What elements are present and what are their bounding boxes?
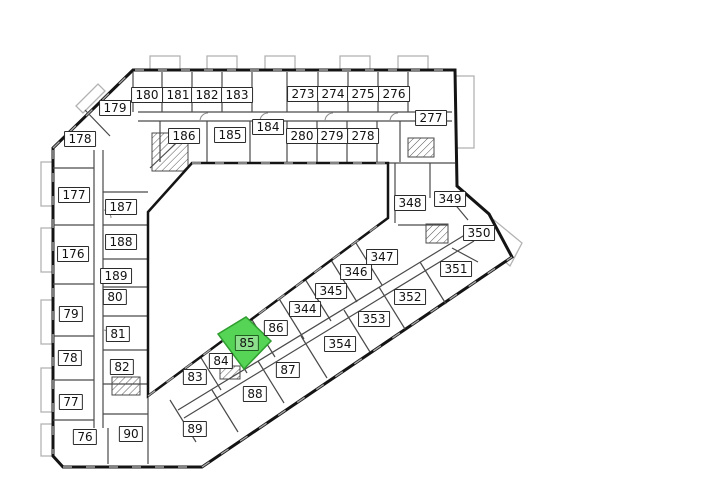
unit-label-179[interactable]: 179 bbox=[99, 100, 131, 116]
unit-label-352[interactable]: 352 bbox=[394, 289, 426, 305]
unit-label-78[interactable]: 78 bbox=[58, 350, 82, 366]
unit-label-187[interactable]: 187 bbox=[105, 199, 137, 215]
unit-label-82[interactable]: 82 bbox=[110, 359, 134, 375]
unit-label-86[interactable]: 86 bbox=[264, 320, 288, 336]
unit-label-89[interactable]: 89 bbox=[183, 421, 207, 437]
unit-label-83[interactable]: 83 bbox=[183, 369, 207, 385]
unit-label-184[interactable]: 184 bbox=[252, 119, 284, 135]
unit-label-351[interactable]: 351 bbox=[440, 261, 472, 277]
unit-label-176[interactable]: 176 bbox=[57, 246, 89, 262]
unit-label-277[interactable]: 277 bbox=[415, 110, 447, 126]
unit-label-353[interactable]: 353 bbox=[358, 311, 390, 327]
unit-label-280[interactable]: 280 bbox=[286, 128, 318, 144]
unit-label-348[interactable]: 348 bbox=[394, 195, 426, 211]
unit-label-180[interactable]: 180 bbox=[131, 87, 163, 103]
unit-label-346[interactable]: 346 bbox=[340, 264, 372, 280]
unit-label-177[interactable]: 177 bbox=[58, 187, 90, 203]
unit-label-276[interactable]: 276 bbox=[378, 86, 410, 102]
unit-label-181[interactable]: 181 bbox=[162, 87, 194, 103]
unit-label-84[interactable]: 84 bbox=[209, 353, 233, 369]
unit-label-183[interactable]: 183 bbox=[221, 87, 253, 103]
unit-label-347[interactable]: 347 bbox=[366, 249, 398, 265]
unit-label-90[interactable]: 90 bbox=[119, 426, 143, 442]
unit-label-278[interactable]: 278 bbox=[347, 128, 379, 144]
unit-label-189[interactable]: 189 bbox=[100, 268, 132, 284]
unit-label-88[interactable]: 88 bbox=[243, 386, 267, 402]
unit-label-186[interactable]: 186 bbox=[168, 128, 200, 144]
unit-label-274[interactable]: 274 bbox=[317, 86, 349, 102]
unit-label-81[interactable]: 81 bbox=[106, 326, 130, 342]
unit-labels: 7677787980818283848586878889901761771781… bbox=[0, 0, 707, 500]
unit-label-349[interactable]: 349 bbox=[434, 191, 466, 207]
unit-label-182[interactable]: 182 bbox=[191, 87, 223, 103]
unit-label-188[interactable]: 188 bbox=[105, 234, 137, 250]
unit-label-80[interactable]: 80 bbox=[103, 289, 127, 305]
unit-label-350[interactable]: 350 bbox=[463, 225, 495, 241]
unit-label-85[interactable]: 85 bbox=[235, 335, 259, 351]
unit-label-77[interactable]: 77 bbox=[59, 394, 83, 410]
unit-label-345[interactable]: 345 bbox=[315, 283, 347, 299]
floorplan-canvas: 7677787980818283848586878889901761771781… bbox=[0, 0, 707, 500]
unit-label-178[interactable]: 178 bbox=[64, 131, 96, 147]
unit-label-273[interactable]: 273 bbox=[287, 86, 319, 102]
unit-label-185[interactable]: 185 bbox=[214, 127, 246, 143]
unit-label-354[interactable]: 354 bbox=[324, 336, 356, 352]
unit-label-87[interactable]: 87 bbox=[276, 362, 300, 378]
unit-label-344[interactable]: 344 bbox=[289, 301, 321, 317]
unit-label-279[interactable]: 279 bbox=[316, 128, 348, 144]
unit-label-76[interactable]: 76 bbox=[73, 429, 97, 445]
unit-label-79[interactable]: 79 bbox=[59, 306, 83, 322]
unit-label-275[interactable]: 275 bbox=[347, 86, 379, 102]
